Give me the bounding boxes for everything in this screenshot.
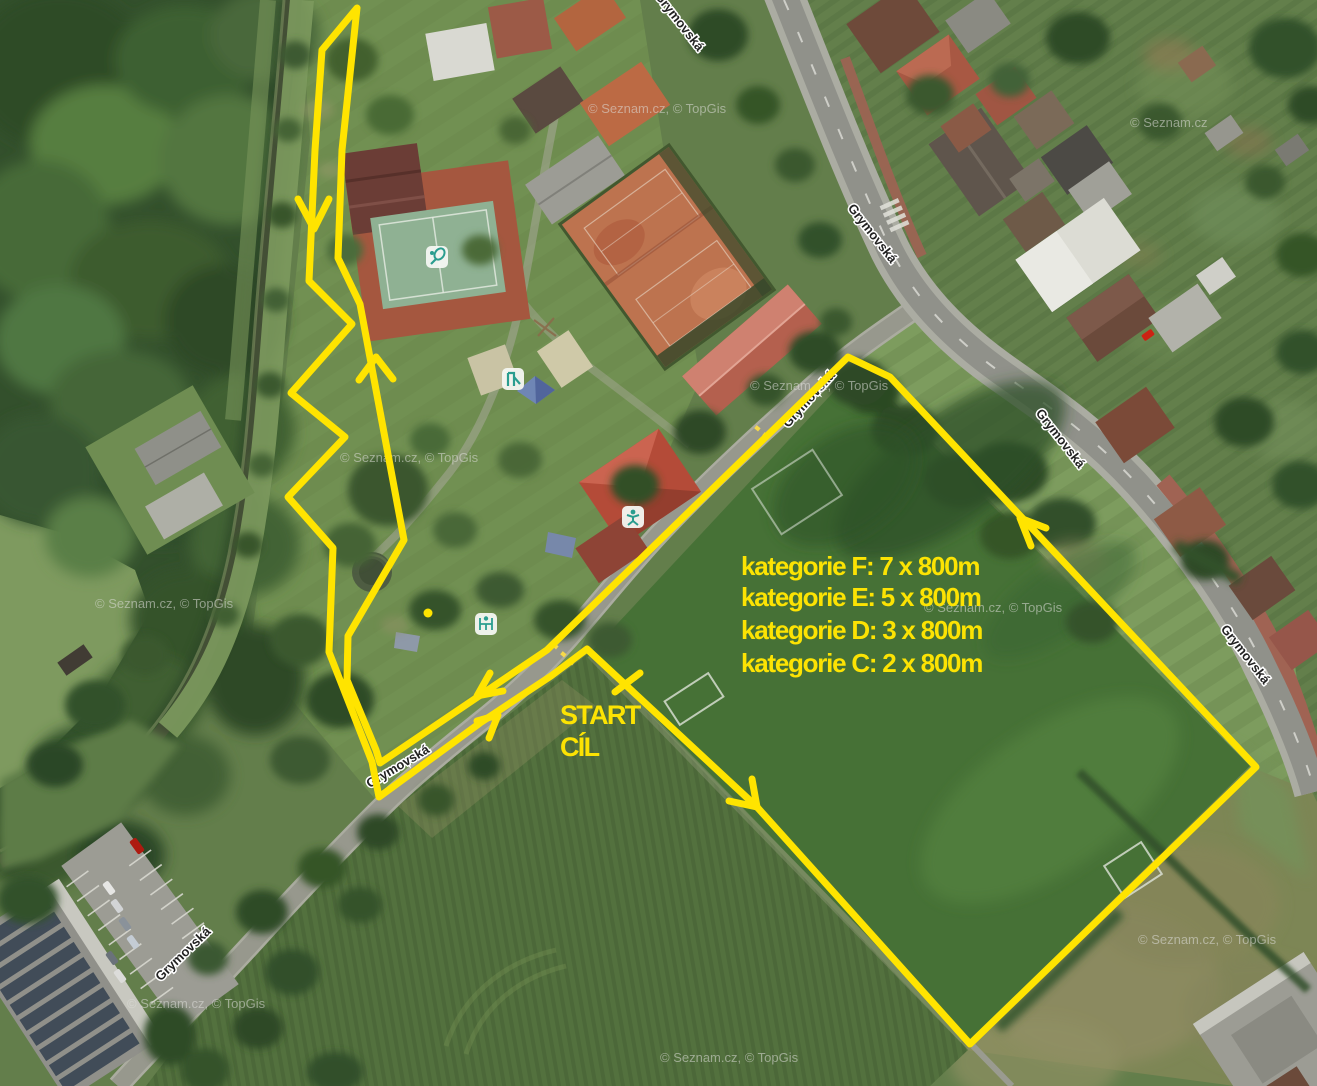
svg-text:kategorie C: 2 x 800m: kategorie C: 2 x 800m <box>741 648 982 678</box>
svg-text:kategorie F: 7 x 800m: kategorie F: 7 x 800m <box>741 551 979 581</box>
svg-text:© Seznam.cz, © TopGis: © Seznam.cz, © TopGis <box>127 996 266 1011</box>
svg-text:© Seznam.cz: © Seznam.cz <box>1130 115 1208 130</box>
svg-text:© Seznam.cz, © TopGis: © Seznam.cz, © TopGis <box>340 450 479 465</box>
svg-text:© Seznam.cz, © TopGis: © Seznam.cz, © TopGis <box>1138 932 1277 947</box>
svg-text:© Seznam.cz, © TopGis: © Seznam.cz, © TopGis <box>95 596 234 611</box>
svg-text:CÍL: CÍL <box>560 731 600 762</box>
svg-text:© Seznam.cz, © TopGis: © Seznam.cz, © TopGis <box>660 1050 799 1065</box>
svg-text:© Seznam.cz, © TopGis: © Seznam.cz, © TopGis <box>588 101 727 116</box>
svg-text:kategorie E: 5 x 800m: kategorie E: 5 x 800m <box>741 582 981 612</box>
svg-text:kategorie D: 3 x 800m: kategorie D: 3 x 800m <box>741 615 982 645</box>
svg-text:START: START <box>560 700 642 730</box>
